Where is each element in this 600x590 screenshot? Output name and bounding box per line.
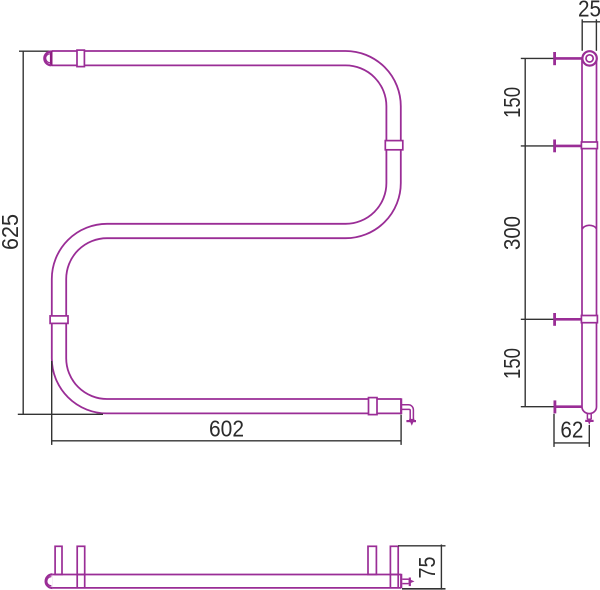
svg-text:75: 75 [414,557,440,579]
svg-text:62: 62 [560,416,583,442]
svg-text:625: 625 [0,214,23,250]
svg-text:150: 150 [499,87,525,118]
svg-text:25: 25 [578,0,600,21]
svg-text:150: 150 [499,348,525,379]
svg-text:602: 602 [209,416,244,442]
svg-text:300: 300 [499,216,525,250]
